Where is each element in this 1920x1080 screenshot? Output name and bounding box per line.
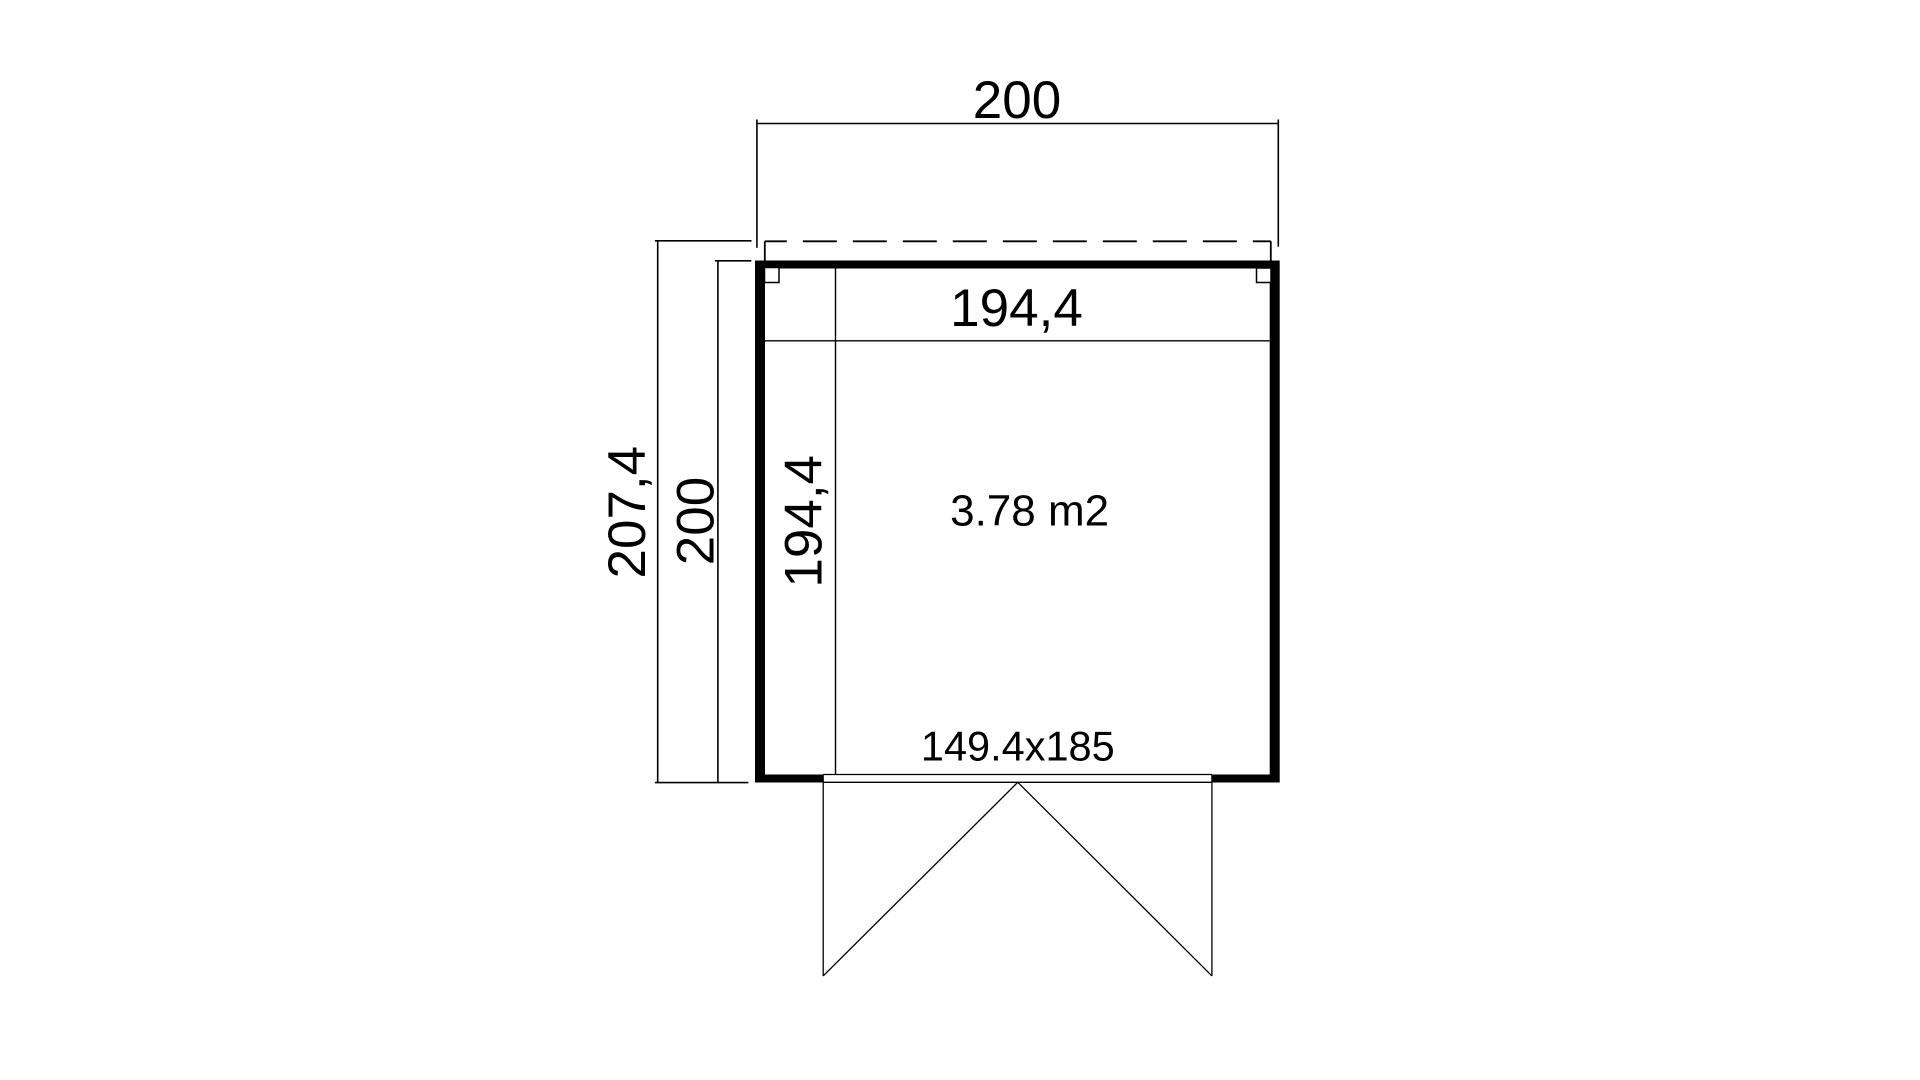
svg-text:3.78 m2: 3.78 m2 bbox=[950, 486, 1109, 535]
svg-text:149.4x185: 149.4x185 bbox=[921, 722, 1115, 769]
svg-text:194,4: 194,4 bbox=[950, 279, 1083, 338]
svg-text:200: 200 bbox=[666, 477, 725, 565]
svg-text:194,4: 194,4 bbox=[774, 455, 833, 588]
svg-text:207,4: 207,4 bbox=[598, 446, 657, 579]
svg-text:200: 200 bbox=[973, 71, 1061, 130]
